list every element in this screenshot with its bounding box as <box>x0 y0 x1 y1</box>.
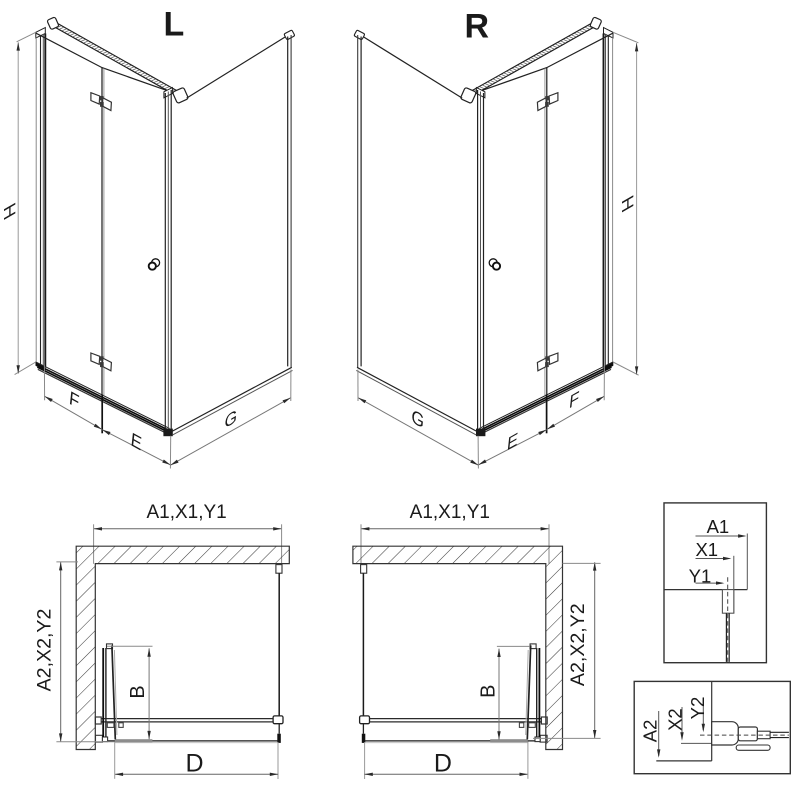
svg-text:B: B <box>127 685 149 698</box>
svg-text:Y2: Y2 <box>687 697 708 720</box>
svg-text:D: D <box>434 750 452 778</box>
svg-text:X1: X1 <box>695 539 718 560</box>
svg-text:H: H <box>0 200 18 224</box>
svg-text:F: F <box>68 386 80 412</box>
svg-text:X2: X2 <box>665 708 686 731</box>
svg-text:A2: A2 <box>640 720 661 743</box>
svg-text:R: R <box>465 8 490 46</box>
svg-text:H: H <box>618 192 636 216</box>
svg-text:A2,X2,Y2: A2,X2,Y2 <box>567 603 589 686</box>
svg-text:A1: A1 <box>707 516 730 537</box>
svg-text:A1,X1,Y1: A1,X1,Y1 <box>410 502 490 523</box>
svg-text:B: B <box>478 685 500 698</box>
svg-text:E: E <box>506 428 519 455</box>
svg-text:L: L <box>164 6 185 44</box>
svg-text:A1,X1,Y1: A1,X1,Y1 <box>146 502 226 523</box>
svg-text:Y1: Y1 <box>689 566 712 587</box>
svg-text:D: D <box>185 750 203 778</box>
svg-text:A2,X2,Y2: A2,X2,Y2 <box>34 609 56 692</box>
svg-text:E: E <box>130 428 143 455</box>
